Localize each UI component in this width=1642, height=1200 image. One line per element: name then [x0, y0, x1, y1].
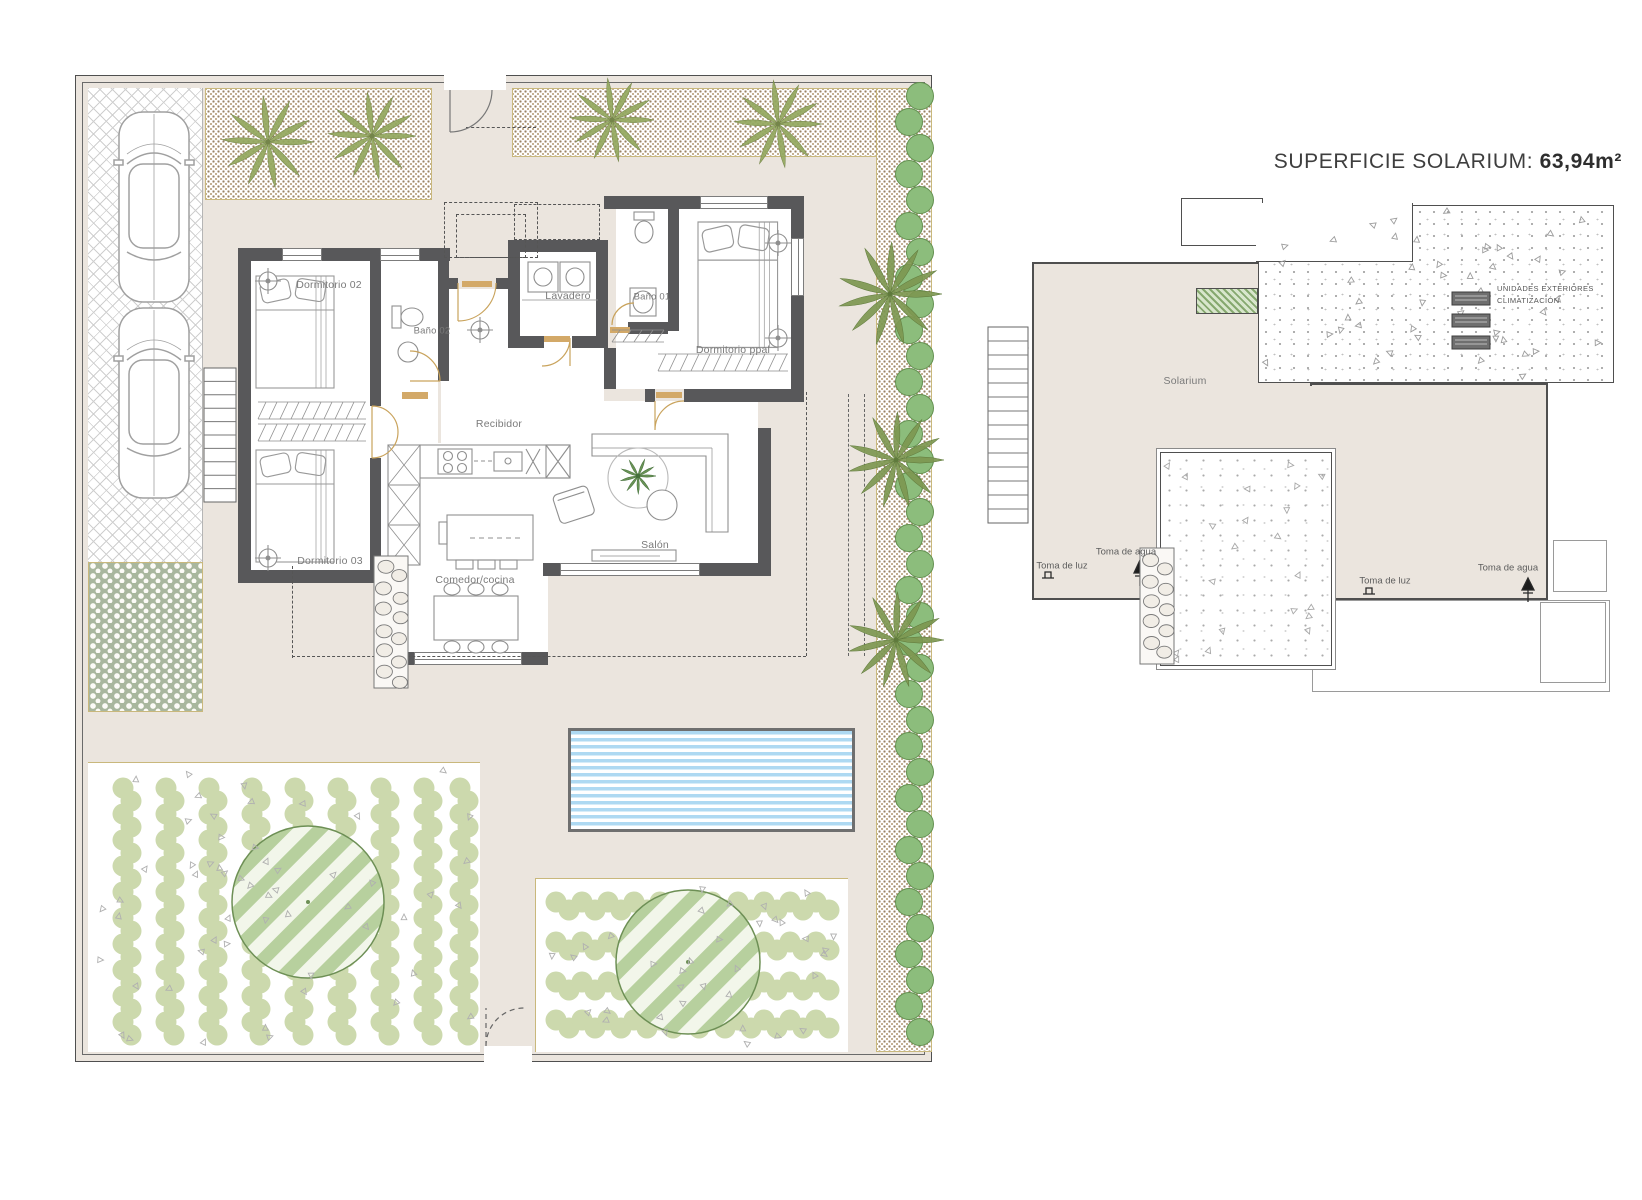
- wall: [645, 389, 655, 402]
- toma-de-agua-label: Toma de agua: [1096, 547, 1156, 558]
- gate-gap-top: [444, 70, 506, 90]
- window: [414, 652, 522, 665]
- pebble-patch: [88, 562, 203, 712]
- planting-strip-east: [876, 88, 932, 1052]
- stair-bulkhead: [1181, 198, 1263, 246]
- wall: [791, 196, 804, 402]
- sheet-title: SUPERFICIE SOLARIUM: 63,94m²: [1100, 150, 1622, 174]
- solarium-label: Solarium: [1163, 375, 1206, 387]
- wall: [448, 278, 458, 289]
- ac-units-label-line1: UNIDADES EXTERIORES: [1497, 284, 1594, 293]
- room-label-recibidor: Recibidor: [476, 418, 522, 430]
- window: [282, 248, 322, 261]
- planting-bed-top-right: [512, 88, 903, 157]
- planting-bed-top-left: [205, 88, 432, 200]
- solarium-stairs: [988, 327, 1028, 523]
- floor-plan-sheet: Dormitorio 02 Baño 02 Lavadero Baño 01 D…: [0, 0, 1642, 1200]
- lower-roof-opening: [1160, 452, 1332, 666]
- room-label-lavadero: Lavadero: [545, 290, 590, 302]
- wall: [370, 458, 381, 583]
- roof-planter: [1196, 288, 1258, 314]
- paving-square: [1553, 540, 1607, 592]
- room-label-salon: Salón: [641, 539, 669, 551]
- toma-de-luz-label: Toma de luz: [1359, 576, 1410, 587]
- terrace-dashed: [864, 394, 865, 656]
- paving-square: [1540, 602, 1606, 683]
- floor-cocina: [396, 443, 548, 652]
- roofline-dashed: [292, 656, 806, 657]
- wall: [758, 428, 771, 563]
- wall: [684, 389, 804, 402]
- wall: [628, 322, 668, 334]
- garden-southeast: [535, 878, 848, 1052]
- sheet-title-label: SUPERFICIE SOLARIUM:: [1274, 150, 1540, 173]
- wall: [438, 248, 449, 381]
- sheet-title-value: 63,94m²: [1540, 150, 1622, 173]
- swimming-pool: [568, 728, 855, 832]
- wall: [604, 348, 616, 389]
- wall: [238, 248, 251, 582]
- wall: [668, 209, 679, 331]
- wall: [596, 240, 608, 348]
- wall: [508, 336, 544, 348]
- window: [380, 248, 420, 261]
- gate-gap-bottom: [484, 1046, 532, 1064]
- toma-de-agua-label: Toma de agua: [1478, 563, 1538, 574]
- entry-dashed: [466, 127, 536, 128]
- roofline-dashed: [292, 566, 293, 658]
- wall: [238, 570, 382, 583]
- room-label-comedor-cocina: Comedor/cocina: [435, 574, 514, 586]
- room-label-bano02: Baño 02: [414, 326, 451, 337]
- window: [560, 563, 700, 576]
- room-label-bano01: Baño 01: [634, 292, 671, 303]
- wall: [370, 261, 381, 404]
- window: [700, 196, 768, 209]
- terrace-dashed: [848, 394, 849, 656]
- room-label-dormitorio02: Dormitorio 02: [296, 279, 362, 291]
- garden-southwest: [88, 762, 480, 1052]
- wall: [572, 336, 608, 348]
- room-label-dormitorio03: Dormitorio 03: [297, 555, 363, 567]
- roofline-dashed: [806, 392, 807, 656]
- gravel-notch: [1256, 203, 1413, 262]
- canopy-dashed: [514, 204, 600, 240]
- wall: [370, 398, 381, 406]
- window: [791, 238, 804, 296]
- room-label-dormitorio-ppal: Dormitorio ppal: [696, 344, 770, 356]
- driveway: [88, 88, 203, 562]
- toma-de-luz-label: Toma de luz: [1036, 561, 1087, 572]
- ac-units-label-line2: CLIMATIZACIÓN: [1497, 296, 1560, 305]
